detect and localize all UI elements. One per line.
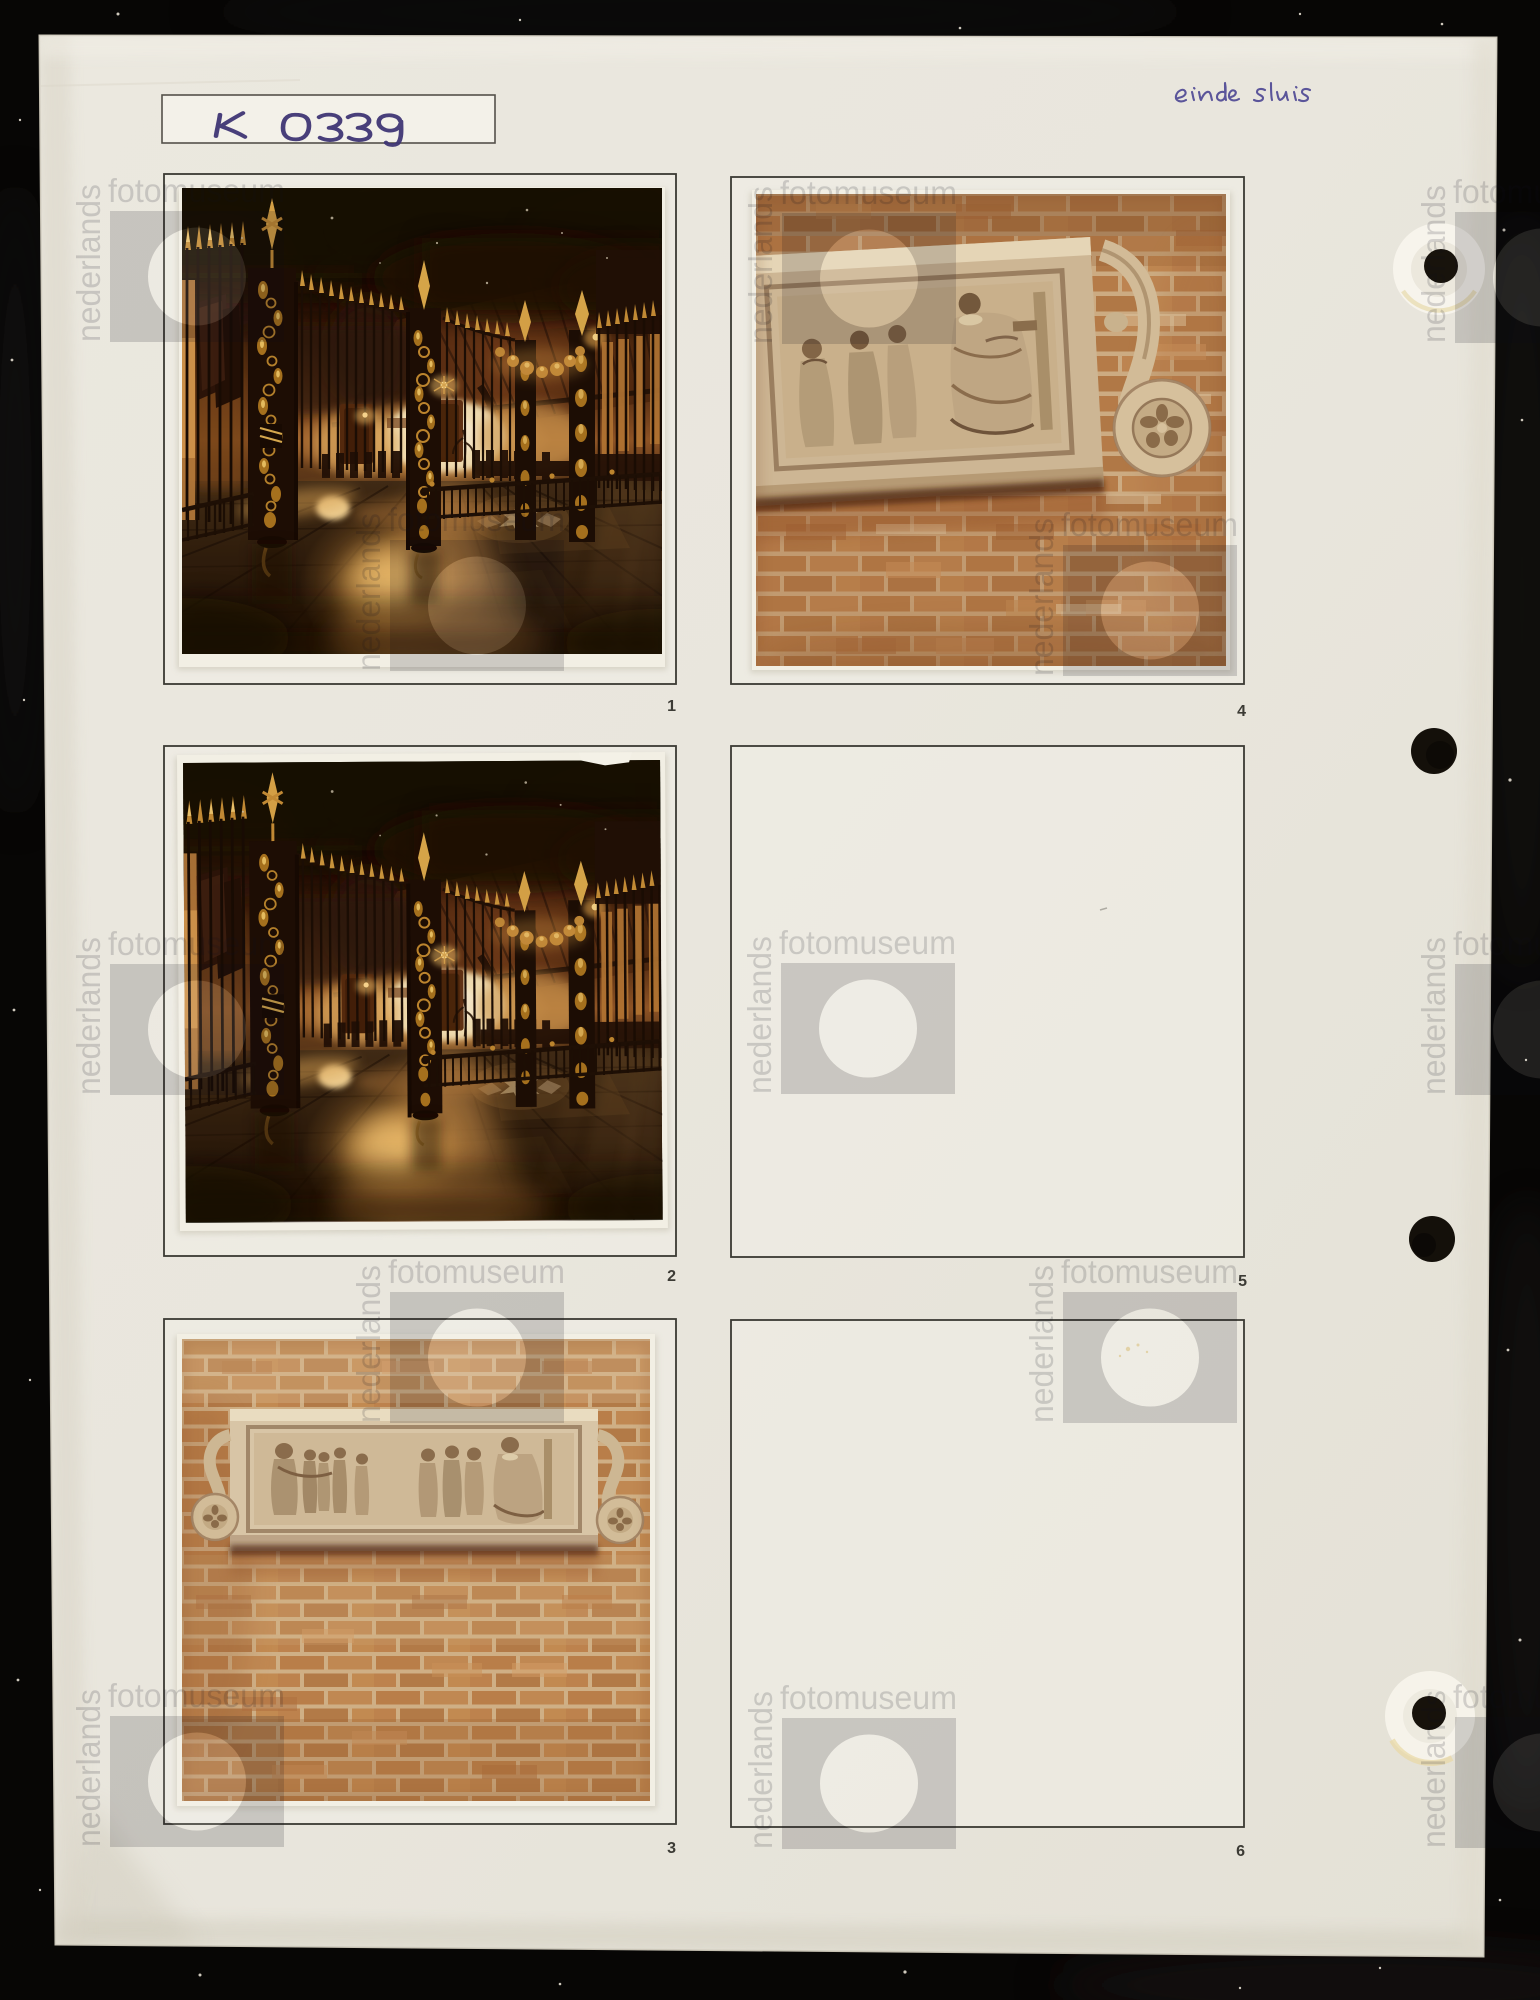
svg-text:6: 6 xyxy=(1236,1843,1245,1860)
svg-text:3: 3 xyxy=(667,1840,676,1857)
svg-text:2: 2 xyxy=(667,1268,676,1285)
svg-text:4: 4 xyxy=(1237,703,1246,720)
svg-text:5: 5 xyxy=(1238,1273,1247,1290)
svg-text:1: 1 xyxy=(667,698,676,715)
